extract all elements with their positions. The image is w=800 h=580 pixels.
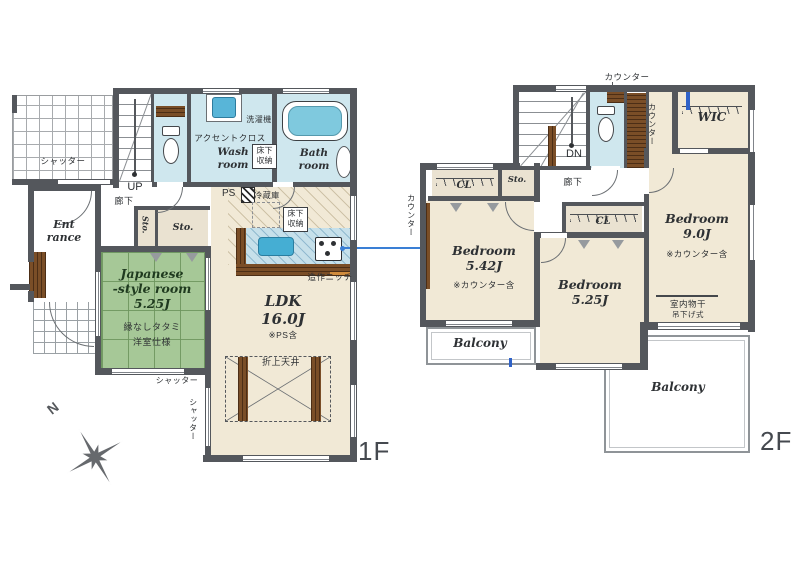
pipe-space-label: PS: [222, 188, 235, 200]
wash-room-label: Wash room: [217, 146, 248, 171]
wic-blue-mark: [686, 92, 690, 110]
wall: [113, 88, 119, 188]
balcony-right-label: Balcony: [651, 380, 704, 394]
wall: [513, 85, 519, 170]
wall: [624, 92, 627, 168]
wash-room-label-line1: Wash: [217, 146, 248, 159]
toilet-bowl-icon-1f: [163, 138, 179, 164]
japanese-room-note2: 洋室仕様: [133, 337, 171, 348]
window: [556, 86, 586, 91]
shutter-west-label: シャッター: [188, 398, 198, 441]
wall: [428, 196, 536, 201]
toilet-tank-icon-2f: [597, 106, 615, 115]
window: [351, 196, 356, 240]
pipe-space-box: [241, 187, 255, 203]
japanese-room-note1: 縁なしタタミ: [123, 322, 180, 333]
stove-burner: [319, 241, 324, 246]
coffered-post-right: [311, 357, 321, 421]
stove-burner: [331, 241, 336, 246]
bedroom-525-label: Bedroom 5.25J: [558, 277, 622, 307]
bedroom-542-door-opening: [534, 202, 540, 232]
closet-door-mark: [578, 240, 590, 249]
wall: [498, 168, 502, 200]
entrance-label-line1: Ent: [47, 218, 82, 231]
coffered-ceiling-label: 折上天井: [262, 357, 300, 368]
window: [658, 323, 740, 329]
garage-grid-area: [12, 95, 113, 185]
japanese-room-door-mark: [150, 253, 162, 262]
bathtub-icon: [288, 106, 342, 136]
underfloor-storage-kitchen-line2: 収納: [286, 219, 305, 229]
indoor-drying-label2: 吊下げ式: [672, 310, 704, 319]
coffered-post-left: [238, 357, 248, 421]
toilet-counter-wood-2f: [607, 92, 624, 103]
entrance-label: Ent rance: [47, 218, 82, 244]
wall: [10, 284, 30, 290]
bedroom-9j-note: ※カウンター含: [666, 249, 728, 259]
stairs-1f-guide-line: [134, 99, 136, 173]
wall: [28, 291, 34, 302]
underfloor-storage-wash-line1: 床下: [255, 146, 274, 156]
window: [750, 205, 755, 260]
bedroom-542-label: Bedroom 5.42J: [452, 243, 516, 273]
closet-door-mark: [612, 240, 624, 249]
ldk-label: LDK 16.0J: [261, 292, 305, 328]
built-in-niche-label: 造作ニッチ: [307, 272, 352, 282]
japanese-room-label: Japanese -style room 5.25J: [113, 266, 192, 311]
wall: [28, 185, 34, 262]
counter-toilet-leader: [612, 82, 613, 92]
counter-542-label: カウンター: [406, 194, 416, 237]
wash-room-label-line2: room: [217, 159, 248, 172]
accent-cloth-label: アクセントクロス: [194, 133, 266, 143]
underfloor-storage-wash-line2: 収納: [255, 156, 274, 166]
wall: [513, 166, 591, 170]
corridor-1f-label: 廊下: [114, 196, 133, 207]
bedroom-525-size: 5.25J: [558, 292, 622, 307]
wall: [672, 92, 678, 154]
stairs-down-label: DN: [566, 148, 582, 161]
shutter-south-label: シャッター: [156, 376, 199, 386]
underfloor-storage-kitchen-label: 床下 収納: [283, 207, 308, 232]
balcony-left-label: Balcony: [453, 336, 506, 350]
window: [243, 456, 329, 461]
ldk-note: ※PS含: [269, 330, 298, 340]
bedroom-9j-size: 9.0J: [665, 226, 729, 241]
japanese-room-line2: -style room: [113, 281, 192, 296]
wall: [420, 163, 426, 327]
wall: [95, 246, 211, 252]
counter-hall-label: カウンター: [647, 103, 657, 146]
wall: [640, 322, 648, 367]
garage-shutter-label: シャッター: [40, 156, 85, 166]
stove-burner: [325, 251, 330, 256]
sliding-door-opening: [206, 258, 210, 310]
stairs-2f-rail-wood: [548, 126, 556, 168]
japanese-room-door-mark: [186, 253, 198, 262]
wall: [12, 95, 17, 113]
washing-machine-label: 洗濯機: [246, 115, 272, 125]
indoor-drying-label1: 室内物干: [670, 299, 706, 309]
compass-rose-icon: [55, 417, 135, 497]
japanese-room-size: 5.25J: [113, 296, 192, 311]
wall: [562, 202, 566, 237]
storage-2f-label: Sto.: [508, 175, 527, 185]
japanese-room-line1: Japanese: [113, 266, 192, 281]
window: [351, 282, 356, 340]
wall: [513, 85, 755, 92]
bedroom-9j-label: Bedroom 9.0J: [665, 211, 729, 241]
window: [556, 364, 622, 369]
closet-door-mark: [450, 203, 462, 212]
window: [283, 89, 329, 93]
stairs-2f-guide-line: [571, 97, 573, 143]
bedroom-542-name: Bedroom: [452, 243, 516, 258]
underfloor-storage-wash-label: 床下 収納: [252, 144, 277, 169]
bedroom-9j-name: Bedroom: [665, 211, 729, 226]
bath-room-label-line2: room: [299, 160, 330, 173]
storage-large-label: Sto.: [173, 222, 194, 233]
window: [750, 110, 755, 152]
bath-room-label: Bath room: [299, 147, 330, 172]
toilet-bowl-icon-2f: [598, 117, 614, 142]
stairs-up-label: UP: [127, 181, 142, 194]
wic-label: WIC: [698, 110, 727, 124]
wall: [134, 206, 138, 250]
closet-525-label: CL: [596, 216, 611, 228]
window: [437, 164, 493, 169]
toilet-counter-wood-1f: [156, 106, 185, 117]
compass-north-label: N: [44, 399, 62, 418]
wall: [272, 94, 277, 182]
storage-small-label: Sto.: [140, 216, 150, 233]
counter-toilet-label: カウンター: [604, 72, 649, 82]
balcony-left-blue-mark: [509, 358, 512, 367]
window: [203, 89, 239, 93]
floor-2-label: 2F: [760, 426, 792, 457]
wall: [155, 208, 158, 250]
bedroom-542-note: ※カウンター含: [453, 280, 515, 290]
ldk-name: LDK: [261, 292, 305, 310]
bedroom-542-size: 5.42J: [452, 258, 516, 273]
bath-room-label-line1: Bath: [299, 147, 330, 160]
washing-machine-icon: [212, 97, 236, 118]
underfloor-storage-kitchen-line1: 床下: [286, 209, 305, 219]
wall: [534, 163, 540, 323]
stairs-1f-dot: [132, 172, 137, 177]
corridor-2f-label: 廊下: [563, 177, 582, 188]
wall: [562, 202, 646, 206]
indoor-drying-bar: [656, 295, 718, 297]
entrance-label-line2: rance: [47, 231, 82, 244]
closet-door-mark: [487, 203, 499, 212]
wall: [586, 92, 590, 168]
window: [351, 385, 356, 437]
bedroom-525-name: Bedroom: [558, 277, 622, 292]
floor-1-label: 1F: [358, 436, 390, 467]
wic-opening: [680, 149, 708, 153]
garage-shutter-opening: [58, 180, 110, 184]
closet-542-label: CL: [457, 180, 472, 192]
floor-plan-canvas: シャッター UP 廊下 Ent rance Sto. Sto. アクセントクロス…: [0, 0, 800, 580]
window: [96, 272, 100, 336]
window: [446, 321, 512, 326]
wall: [151, 94, 154, 182]
kitchen-sink-icon: [258, 237, 294, 256]
toilet-tank-icon-1f: [162, 126, 180, 136]
ldk-size: 16.0J: [261, 310, 305, 328]
window: [112, 369, 184, 374]
wall: [187, 94, 191, 182]
refrigerator-label: 冷蔵庫: [254, 191, 280, 201]
window: [206, 388, 210, 446]
